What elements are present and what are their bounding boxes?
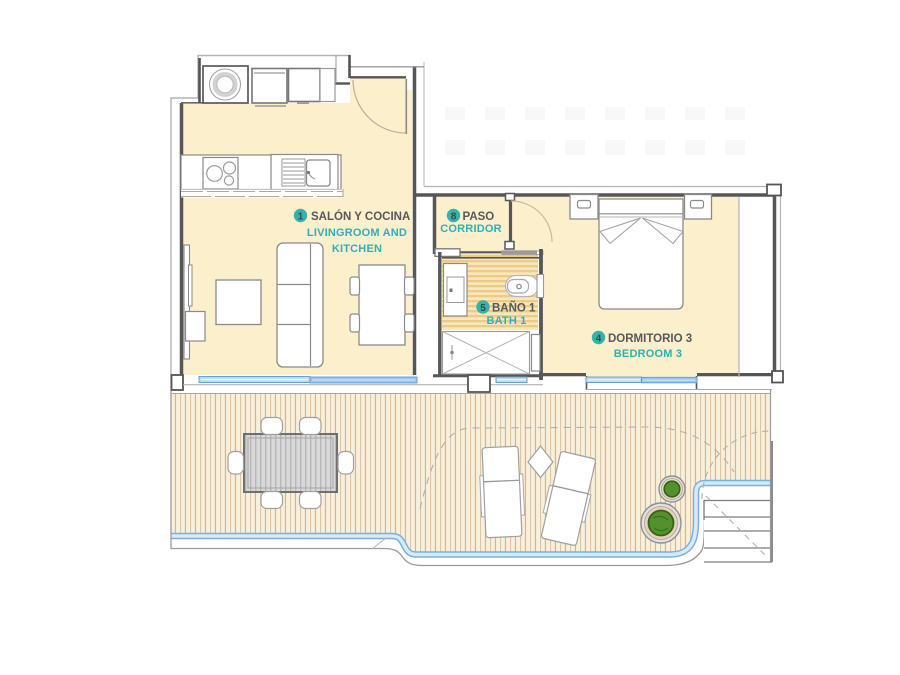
svg-text:8: 8 [451, 212, 457, 223]
svg-text:BAÑO 1: BAÑO 1 [492, 302, 536, 315]
svg-text:KITCHEN: KITCHEN [332, 243, 382, 255]
svg-text:CORRIDOR: CORRIDOR [440, 223, 502, 235]
svg-text:4: 4 [596, 334, 602, 345]
svg-text:BATH 1: BATH 1 [486, 315, 526, 327]
svg-text:BEDROOM 3: BEDROOM 3 [614, 348, 682, 360]
svg-text:PASO: PASO [463, 211, 495, 223]
svg-text:5: 5 [480, 303, 486, 314]
svg-text:DORMITORIO 3: DORMITORIO 3 [608, 333, 692, 345]
svg-text:LIVINGROOM AND: LIVINGROOM AND [307, 227, 407, 239]
svg-text:SALÓN Y COCINA: SALÓN Y COCINA [311, 210, 410, 223]
svg-text:1: 1 [298, 212, 304, 223]
